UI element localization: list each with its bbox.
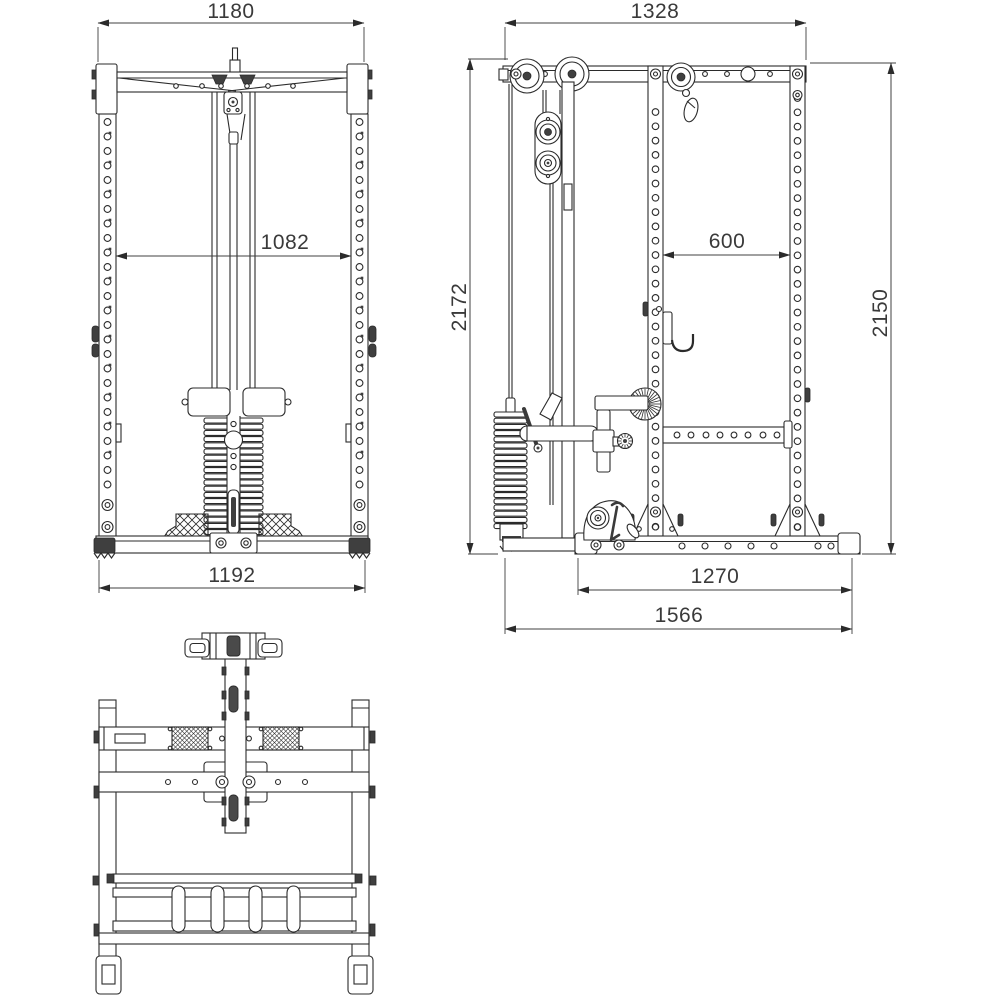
mounting-hole (794, 495, 801, 502)
mounting-hole (794, 424, 801, 431)
side-floating-pulley (535, 112, 561, 184)
knurled-grip-left (172, 727, 208, 750)
pin-slot (109, 161, 112, 164)
mounting-hole (794, 409, 801, 416)
weight-plate (494, 418, 527, 423)
dim-front-top-width-label: 1180 (207, 0, 254, 23)
mounting-hole (794, 209, 801, 216)
mounting-hole (356, 351, 363, 358)
side-weight-stack (494, 398, 542, 551)
weight-plate (494, 486, 527, 491)
pin-slot (109, 451, 112, 454)
mounting-hole (219, 84, 224, 89)
mounting-hole (794, 438, 801, 445)
weight-plate (494, 505, 527, 510)
front-base (94, 533, 370, 558)
mounting-hole (104, 481, 111, 488)
drawing-svg: 1180 1082 1192 (0, 0, 1000, 1000)
side-posts (643, 66, 810, 544)
knurled-grip-right (263, 727, 299, 750)
plan-feet (96, 956, 373, 994)
weight-plate (494, 474, 527, 479)
mounting-hole (652, 323, 659, 330)
dim-side-top-width-label: 1328 (631, 0, 680, 23)
mounting-hole (652, 366, 659, 373)
mounting-hole (356, 481, 363, 488)
dim-side-base-length: 1270 (578, 558, 852, 595)
bolt (594, 543, 598, 547)
mounting-hole (356, 380, 363, 387)
mounting-hole (652, 152, 659, 159)
mounting-hole (356, 409, 363, 416)
mounting-hole (356, 293, 363, 300)
side-low-pulley (584, 501, 641, 540)
pin-slot (109, 132, 112, 135)
mounting-hole (794, 281, 801, 288)
mounting-hole (166, 780, 171, 785)
mounting-hole (193, 780, 198, 785)
bolt (796, 93, 800, 97)
mounting-hole (748, 543, 754, 549)
mounting-hole (652, 338, 659, 345)
mounting-hole (291, 84, 296, 89)
dim-side-overall-height-label: 2172 (448, 283, 471, 332)
pin-slot (361, 335, 364, 338)
mounting-hole (276, 780, 281, 785)
side-knob-attachment (520, 396, 648, 472)
mounting-hole (104, 119, 111, 126)
mounting-hole (303, 780, 308, 785)
mounting-hole (652, 295, 659, 302)
dim-side-frame-height: 2150 (810, 63, 896, 554)
dim-front-top-width: 1180 (98, 0, 364, 62)
mounting-hole (794, 352, 801, 359)
mounting-hole (674, 432, 680, 438)
pin-slot (361, 364, 364, 367)
mounting-hole (794, 452, 801, 459)
mounting-hole (220, 736, 225, 741)
mounting-hole (652, 481, 659, 488)
mounting-hole (356, 438, 363, 445)
bolt (796, 510, 800, 514)
mounting-hole (104, 438, 111, 445)
pin-slot (109, 277, 112, 280)
pin-slot (109, 190, 112, 193)
mounting-hole (652, 423, 659, 430)
mounting-hole (652, 166, 659, 173)
weight-plate (494, 517, 527, 522)
mounting-hole (717, 432, 723, 438)
bolt (357, 503, 362, 508)
mounting-hole (702, 543, 708, 549)
pin-slot (361, 190, 364, 193)
weight-plate (494, 468, 527, 473)
mounting-hole (356, 206, 363, 213)
dim-side-overall-depth-label: 1566 (655, 604, 704, 627)
mounting-hole (247, 736, 252, 741)
mounting-hole (356, 119, 363, 126)
mounting-hole (652, 466, 659, 473)
mounting-hole (794, 109, 801, 116)
dim-side-top-width: 1328 (505, 0, 806, 60)
mounting-hole (794, 252, 801, 259)
bolt (105, 503, 110, 508)
mounting-hole (652, 495, 659, 502)
bolt (219, 541, 223, 545)
mounting-hole (794, 181, 801, 188)
mounting-hole (794, 467, 801, 474)
mounting-hole (356, 148, 363, 155)
bolt (220, 780, 225, 785)
mounting-hole (794, 395, 801, 402)
mounting-hole (652, 109, 659, 116)
plan-view (93, 633, 376, 994)
mounting-hole (104, 409, 111, 416)
side-cable-fitting (540, 393, 562, 420)
bolt (617, 543, 621, 547)
pin-slot (109, 306, 112, 309)
pin-slot (109, 422, 112, 425)
mounting-hole (771, 543, 777, 549)
mounting-hole (652, 380, 659, 387)
mounting-hole (104, 380, 111, 387)
mounting-hole (828, 543, 834, 549)
mounting-hole (725, 543, 731, 549)
pin-slot (109, 248, 112, 251)
mounting-hole (652, 223, 659, 230)
weight-plate (494, 449, 527, 454)
mounting-hole (794, 138, 801, 145)
side-pulley-front-post (667, 63, 695, 91)
pin-slot (361, 248, 364, 251)
mounting-hole (794, 366, 801, 373)
side-view: 1328 600 2172 2150 1270 1566 (448, 0, 896, 634)
weight-plate (494, 443, 527, 448)
front-top-assembly (92, 48, 372, 144)
mounting-hole (794, 295, 801, 302)
mounting-hole (652, 452, 659, 459)
side-safety-bar (663, 421, 792, 448)
mounting-hole (652, 195, 659, 202)
mounting-hole (652, 137, 659, 144)
mounting-hole (794, 309, 801, 316)
mounting-hole (725, 72, 730, 77)
mounting-hole (652, 280, 659, 287)
mounting-hole (768, 72, 773, 77)
mounting-hole (794, 195, 801, 202)
mounting-hole (652, 180, 659, 187)
bolt (514, 72, 518, 76)
dim-front-base-width-label: 1192 (208, 564, 255, 587)
bolt (247, 780, 252, 785)
weight-plate (494, 462, 527, 467)
mounting-hole (760, 432, 766, 438)
pin-slot (361, 132, 364, 135)
mounting-hole (703, 72, 708, 77)
mounting-hole (794, 324, 801, 331)
bolt (244, 541, 248, 545)
pin-slot (361, 393, 364, 396)
weight-plate (494, 499, 527, 504)
mounting-hole (794, 338, 801, 345)
mounting-hole (104, 235, 111, 242)
technical-drawing-canvas: 1180 1082 1192 (0, 0, 1000, 1000)
side-carabiner (682, 90, 700, 124)
mounting-hole (104, 264, 111, 271)
mounting-hole (104, 177, 111, 184)
plan-bottom-frame (99, 874, 369, 944)
weight-plate (494, 412, 527, 417)
mounting-hole (652, 123, 659, 130)
pin-slot (361, 451, 364, 454)
dim-front-inner-width: 1082 (116, 231, 351, 256)
mounting-hole (356, 177, 363, 184)
mounting-hole (104, 351, 111, 358)
dim-side-frame-height-label: 2150 (869, 289, 892, 338)
mounting-hole (104, 293, 111, 300)
mounting-hole (745, 432, 751, 438)
mounting-hole (815, 543, 821, 549)
dim-side-post-spacing: 600 (663, 230, 790, 255)
mounting-hole (266, 84, 271, 89)
dim-side-post-spacing-label: 600 (709, 230, 746, 253)
mounting-hole (652, 209, 659, 216)
dim-front-inner-width-label: 1082 (261, 231, 310, 254)
bolt (654, 510, 658, 514)
dim-side-base-length-label: 1270 (691, 565, 740, 588)
mounting-hole (774, 432, 780, 438)
mounting-hole (356, 235, 363, 242)
mounting-hole (652, 438, 659, 445)
pin-slot (109, 335, 112, 338)
dim-front-base-width: 1192 (99, 560, 365, 593)
pin-slot (361, 219, 364, 222)
mounting-hole (356, 322, 363, 329)
weight-plate (494, 511, 527, 516)
mounting-hole (104, 467, 111, 474)
bolt (654, 72, 658, 76)
weight-plate (494, 455, 527, 460)
mounting-hole (104, 148, 111, 155)
mounting-hole (104, 322, 111, 329)
mounting-hole (794, 223, 801, 230)
mounting-hole (652, 252, 659, 259)
weight-plate (494, 493, 527, 498)
mounting-hole (652, 266, 659, 273)
mounting-hole (679, 543, 685, 549)
mounting-hole (356, 264, 363, 271)
side-lat-tower (535, 82, 574, 538)
mounting-hole (245, 84, 250, 89)
mounting-hole (731, 432, 737, 438)
mounting-hole (174, 84, 179, 89)
weight-plate (494, 480, 527, 485)
pin-slot (361, 306, 364, 309)
mounting-hole (794, 266, 801, 273)
pin-slot (361, 161, 364, 164)
mounting-hole (356, 467, 363, 474)
mounting-hole (104, 206, 111, 213)
pin-slot (109, 364, 112, 367)
mounting-hole (794, 238, 801, 245)
mounting-hole (652, 237, 659, 244)
side-base (503, 501, 860, 554)
dim-side-overall-depth: 1566 (505, 558, 852, 634)
pin-slot (361, 277, 364, 280)
mounting-hole (688, 432, 694, 438)
mounting-hole (794, 381, 801, 388)
mounting-hole (794, 481, 801, 488)
mounting-hole (794, 152, 801, 159)
bolt (357, 525, 362, 530)
pin-slot (361, 422, 364, 425)
pin-slot (109, 219, 112, 222)
bolt (105, 525, 110, 530)
mounting-hole (652, 352, 659, 359)
mounting-hole (794, 166, 801, 173)
mounting-hole (794, 123, 801, 130)
pin-slot (109, 393, 112, 396)
front-view: 1180 1082 1192 (92, 0, 376, 593)
front-pulley-bracket (224, 92, 245, 144)
bolt (796, 72, 800, 76)
mounting-hole (703, 432, 709, 438)
mounting-hole (200, 84, 205, 89)
